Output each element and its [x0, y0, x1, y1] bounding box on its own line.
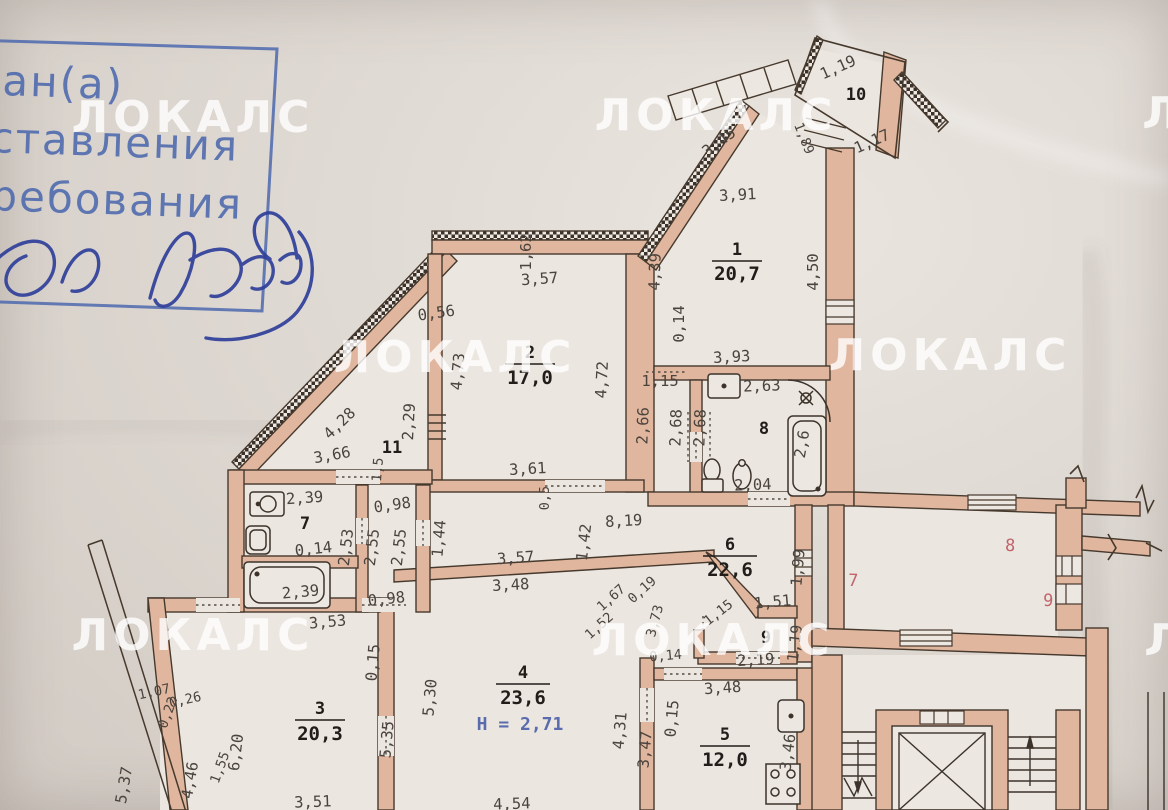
room-floors: [160, 48, 1088, 810]
dim-label: 8,19: [605, 511, 643, 531]
dim-label: 3,93: [713, 347, 751, 367]
dim-label: 1,15: [641, 372, 678, 390]
sink-icon-kitchen: [778, 700, 804, 732]
dim-label: 0,5: [537, 486, 553, 510]
window-neighbor-bottom: [900, 630, 952, 646]
room-7-label: 7: [300, 514, 310, 534]
room-8-label: 8: [759, 419, 769, 439]
dim-label: 4,31: [609, 711, 630, 750]
svg-text:22,6: 22,6: [707, 559, 753, 581]
stamp: ан(а) ставления ребования: [0, 40, 277, 311]
dim-label: 0,15: [362, 643, 383, 682]
svg-text:20,7: 20,7: [714, 263, 760, 285]
svg-text:12,0: 12,0: [702, 749, 748, 771]
dim-label: 4,50: [804, 253, 822, 290]
svg-text:5: 5: [720, 725, 730, 745]
watermark-text: ЛОКАЛС: [592, 615, 835, 666]
window-neighbor-right-2: [1056, 584, 1082, 604]
dim-label: 1,44: [428, 519, 449, 558]
dim-label: 1,51: [753, 591, 792, 612]
water-heater-icon: [246, 526, 270, 554]
dim-label: 3,91: [719, 185, 757, 205]
watermark-text: ЛОКАЛС: [334, 332, 577, 383]
room-10-label: 10: [846, 85, 866, 105]
watermark-text: ЛОКАЛС: [595, 90, 838, 141]
svg-text:23,6: 23,6: [500, 687, 546, 709]
svg-text:6: 6: [725, 535, 735, 555]
svg-text:4: 4: [518, 663, 528, 683]
svg-text:20,3: 20,3: [297, 723, 343, 745]
dim-label: 4,54: [493, 794, 531, 810]
dim-label: 0,14: [670, 305, 688, 342]
dim-label: 5,30: [419, 678, 440, 717]
dim-label: 2,68: [690, 409, 709, 447]
neighbor-unit-7: 7: [848, 571, 859, 591]
dim-label: 3,48: [703, 678, 741, 699]
watermark-text-partial: Л: [1142, 88, 1168, 139]
dim-label: 2,29: [399, 403, 419, 441]
neighbor-unit-9: 9: [1043, 591, 1054, 611]
dim-label: 5,37: [112, 765, 136, 805]
watermark-text-partial: Л: [1144, 615, 1168, 666]
dim-label: 2,39: [285, 488, 323, 509]
watermark-text: ЛОКАЛС: [829, 330, 1072, 381]
dim-label: 2,63: [743, 376, 781, 395]
dim-label: 2,39: [281, 581, 320, 602]
elevator-shaft: [892, 726, 992, 810]
dim-label: 1,5: [369, 457, 387, 483]
dim-label: 5,35: [376, 720, 397, 759]
dim-label: 4,39: [645, 253, 664, 291]
dim-label: 1,99: [787, 548, 808, 587]
window-room1-right: [826, 300, 854, 324]
room-11-label: 11: [382, 438, 402, 458]
dim-label: 4,72: [592, 361, 612, 399]
dim-label: 3,57: [496, 548, 534, 569]
dim-label: 3,57: [520, 269, 558, 290]
stamp-text-line3: ребования: [0, 171, 244, 229]
dim-label: 0,15: [661, 699, 682, 738]
window-elevator-top: [920, 711, 964, 724]
sink-icon-wc: [250, 492, 284, 516]
sink-icon-bathroom: [708, 374, 740, 398]
dim-label: 3,47: [634, 730, 655, 769]
window-neighbor-top: [968, 495, 1016, 510]
svg-text:1: 1: [732, 240, 742, 260]
ceiling-height-note: H = 2,71: [477, 714, 564, 735]
svg-text:3: 3: [315, 699, 325, 719]
dim-label: 3,61: [509, 459, 547, 479]
dim-label: 2,68: [666, 409, 685, 447]
dim-label: 2,66: [633, 407, 652, 445]
dim-label: 3,51: [294, 792, 332, 810]
window-neighbor-right: [1056, 556, 1082, 576]
neighbor-unit-8: 8: [1005, 536, 1016, 556]
watermark-text: ЛОКАЛС: [72, 610, 315, 661]
floorplan-photo: 3,91 4,39 4,50 3,45 1,19 1,17 1,89 1,15 …: [0, 0, 1168, 810]
floorplan-drawing: 3,91 4,39 4,50 3,45 1,19 1,17 1,89 1,15 …: [0, 0, 1168, 810]
dim-label: 1,62: [517, 233, 535, 270]
dim-label: 3,48: [492, 575, 530, 595]
watermark-text: ЛОКАЛС: [72, 92, 315, 143]
dim-label: 2,04: [734, 475, 772, 494]
